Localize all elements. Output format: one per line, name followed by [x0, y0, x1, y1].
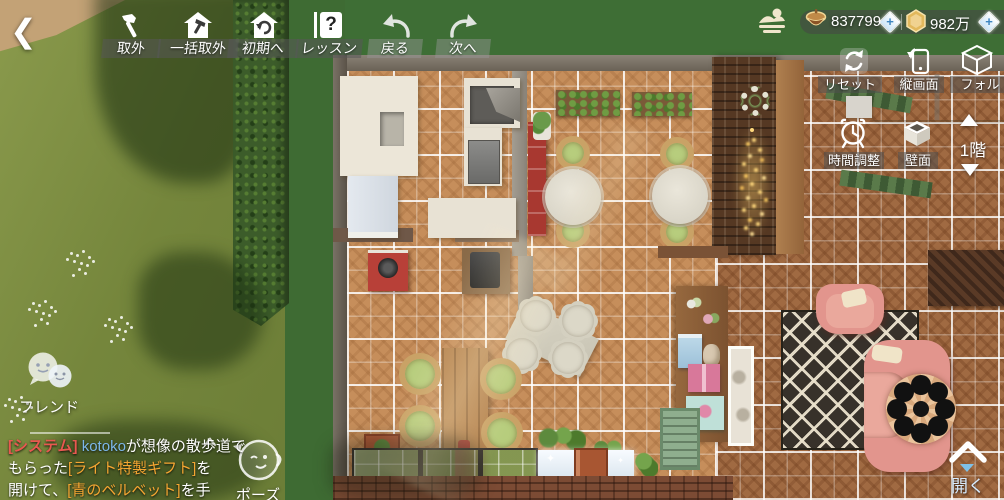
- house-reset-icon: [248, 10, 280, 40]
- chat-line-3: 開けて、[青のベルベット]を手: [8, 480, 236, 500]
- rotate-phone-icon: [903, 45, 933, 75]
- chat-line-1: [システム] kotokoが想像の散歩道で: [8, 436, 236, 458]
- plus-icon: +: [982, 15, 996, 29]
- vase-flowers-pink[interactable]: [700, 310, 720, 328]
- environment-button[interactable]: [754, 4, 790, 38]
- blue-box[interactable]: [678, 334, 702, 368]
- wood-panel-wall: [776, 60, 804, 254]
- open-label: 開く: [944, 472, 992, 497]
- planter-box[interactable]: [632, 92, 692, 116]
- pink-gift[interactable]: [688, 364, 720, 392]
- chat-top-line: [30, 432, 110, 434]
- chandelier[interactable]: [913, 401, 929, 417]
- friend-button[interactable]: フレンド: [14, 348, 84, 414]
- chat-tag: [システム]: [8, 438, 78, 455]
- toolbar-initial-label: 初期へ: [227, 39, 299, 58]
- hammer-icon: [116, 12, 146, 40]
- back-chevron-icon: ❮: [10, 13, 37, 49]
- chevron-up-icon: [945, 436, 991, 464]
- wreath[interactable]: [740, 86, 770, 116]
- petal-chair[interactable]: [520, 300, 552, 332]
- flower-cluster: [32, 302, 35, 305]
- flower-cluster: [108, 318, 111, 321]
- chat-gift-link[interactable]: [ライト特製ギフト]: [68, 460, 196, 477]
- floor-plants[interactable]: [536, 426, 586, 450]
- gold-coin-icon: [905, 9, 927, 33]
- toolbar-redo-label: 次へ: [435, 39, 491, 58]
- green-door[interactable]: [660, 408, 700, 470]
- white-board[interactable]: [728, 346, 754, 446]
- round-table[interactable]: [545, 169, 601, 225]
- cart-wheel: [378, 258, 398, 278]
- open-panel-button[interactable]: 開く: [942, 436, 994, 494]
- reset-icon: [839, 47, 869, 75]
- white-furniture-small[interactable]: [846, 96, 872, 118]
- toolbar-remove-label: 取外: [101, 39, 161, 58]
- string-lights[interactable]: [750, 128, 754, 132]
- floor-label: 1階: [956, 136, 990, 161]
- dining-chair[interactable]: [660, 137, 694, 171]
- house-hammer-icon: [182, 10, 214, 40]
- back-button[interactable]: ❮: [10, 12, 50, 52]
- kitchen-island[interactable]: [428, 198, 516, 238]
- hanging-chair[interactable]: [399, 353, 441, 395]
- bush[interactable]: [634, 450, 658, 478]
- toolbar-undo-label: 戻る: [367, 39, 423, 58]
- cube-icon: [960, 44, 994, 76]
- pose-label: ポーズ: [232, 484, 284, 500]
- landscape-icon: [754, 4, 790, 36]
- planter-box[interactable]: [556, 90, 620, 116]
- friend-label: フレンド: [14, 396, 84, 417]
- petal-chair[interactable]: [562, 305, 594, 337]
- currency-divider: [901, 14, 902, 30]
- chat-text: を: [196, 460, 211, 477]
- floor-up-button[interactable]: [960, 114, 978, 126]
- redo-arrow-icon: [446, 10, 482, 40]
- potted-plant[interactable]: [533, 112, 551, 140]
- flower-cluster: [8, 398, 11, 401]
- chat-panel[interactable]: [システム] kotokoが想像の散歩道で もらった[ライト特製ギフト]を 開け…: [8, 436, 236, 500]
- chat-user: kotoko: [82, 438, 126, 455]
- wall-box-icon: [901, 119, 933, 149]
- plus-icon: +: [883, 15, 897, 29]
- folder-label: フォル: [950, 76, 1004, 93]
- portrait-label: 縦画面: [894, 76, 944, 93]
- house-corner-shadow: [330, 436, 480, 500]
- game-screen: ❮ 取外 一括取外 初期へ ? レッスン: [0, 0, 1004, 500]
- oven-front[interactable]: [468, 140, 500, 184]
- tree-shadow: [138, 252, 263, 370]
- acorn-icon: [804, 7, 828, 33]
- chat-line-2: もらった[ライト特製ギフト]を: [8, 458, 236, 480]
- chat-text: が想像の散歩道で: [126, 438, 246, 455]
- chat-bubbles-icon: [22, 348, 76, 396]
- lesson-question-icon: ?: [320, 12, 342, 38]
- chat-text: もらった: [8, 460, 68, 477]
- bunny-figure[interactable]: [703, 344, 720, 366]
- alarm-clock-icon: [837, 117, 869, 151]
- gold-amount: 982万: [930, 13, 970, 34]
- blue-triangle-icon: [960, 464, 974, 472]
- dark-wood-table[interactable]: [928, 250, 1004, 306]
- shelf-bar: [658, 246, 728, 258]
- string-lights-glow: [732, 124, 774, 242]
- chat-text: を手: [181, 482, 211, 499]
- undo-arrow-icon: [378, 10, 414, 40]
- toolbar-lesson-label: レッスン: [295, 39, 363, 58]
- petal-chair[interactable]: [552, 342, 584, 374]
- reset-label: リセット: [818, 76, 882, 93]
- kitchen-counter[interactable]: [340, 76, 418, 176]
- dining-chair[interactable]: [556, 136, 590, 170]
- time-adjust-label: 時間調整: [824, 152, 884, 169]
- coffee-machine[interactable]: [470, 252, 500, 288]
- fridge[interactable]: [348, 176, 398, 238]
- chat-gift-link[interactable]: [青のベルベット]: [67, 482, 180, 499]
- chat-text: 開けて、: [8, 482, 67, 499]
- floor-down-button[interactable]: [961, 164, 979, 176]
- acorn-amount: 837799: [831, 13, 881, 30]
- kitchen-sink[interactable]: [380, 112, 404, 146]
- hanging-chair[interactable]: [480, 358, 522, 400]
- lesson-bar-icon: [314, 12, 317, 38]
- wall-label: 壁面: [898, 152, 938, 169]
- round-table[interactable]: [652, 168, 708, 224]
- flower-cluster: [70, 252, 73, 255]
